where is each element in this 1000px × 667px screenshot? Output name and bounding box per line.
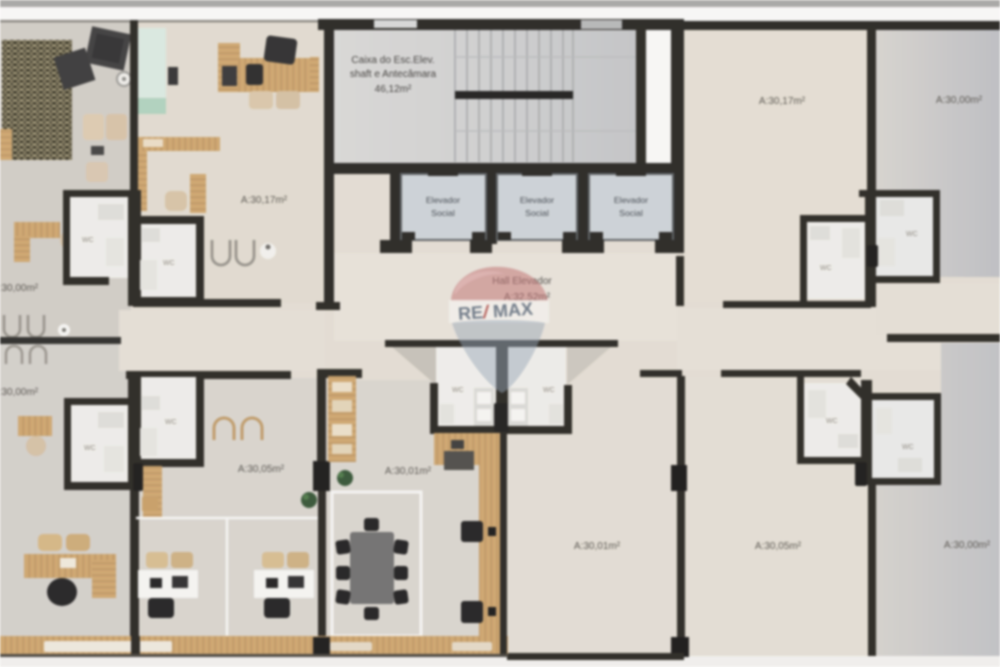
svg-text:A:30,17m²: A:30,17m² bbox=[241, 195, 288, 206]
svg-text:WC: WC bbox=[165, 419, 177, 426]
svg-text:Elevador: Elevador bbox=[426, 195, 460, 205]
svg-text:A:30,00m²: A:30,00m² bbox=[944, 540, 991, 551]
svg-text:RE: RE bbox=[457, 302, 483, 324]
svg-text:shaft e Antecâmara: shaft e Antecâmara bbox=[350, 69, 437, 80]
svg-text:WC: WC bbox=[820, 265, 832, 272]
svg-text:A:30,00m²: A:30,00m² bbox=[936, 95, 983, 106]
svg-text:Social: Social bbox=[431, 208, 455, 218]
svg-text:A:30,01m²: A:30,01m² bbox=[574, 541, 621, 552]
svg-text:MAX: MAX bbox=[492, 299, 533, 322]
svg-text:WC: WC bbox=[452, 387, 464, 394]
svg-text:A:30,05m²: A:30,05m² bbox=[238, 464, 285, 475]
svg-text:A:30,05m²: A:30,05m² bbox=[755, 541, 802, 552]
svg-text:46,12m²: 46,12m² bbox=[375, 84, 412, 95]
svg-text:A:30,00m²: A:30,00m² bbox=[0, 387, 39, 398]
svg-text:A:30,17m²: A:30,17m² bbox=[759, 96, 806, 107]
svg-text:WC: WC bbox=[163, 260, 175, 267]
svg-text:WC: WC bbox=[902, 444, 914, 451]
svg-text:Elevador: Elevador bbox=[614, 195, 648, 205]
svg-text:Social: Social bbox=[619, 208, 643, 218]
svg-text:WC: WC bbox=[906, 231, 918, 238]
svg-text:Elevador: Elevador bbox=[520, 195, 554, 205]
svg-text:WC: WC bbox=[543, 387, 555, 394]
svg-text:WC: WC bbox=[84, 445, 96, 452]
svg-text:A:30,01m²: A:30,01m² bbox=[385, 466, 432, 477]
svg-text:Caixa do Esc.Elev.: Caixa do Esc.Elev. bbox=[351, 55, 434, 66]
svg-text:WC: WC bbox=[82, 237, 94, 244]
svg-text:WC: WC bbox=[826, 418, 838, 425]
svg-text:Social: Social bbox=[525, 208, 549, 218]
svg-text:A:30,00m²: A:30,00m² bbox=[0, 283, 39, 294]
